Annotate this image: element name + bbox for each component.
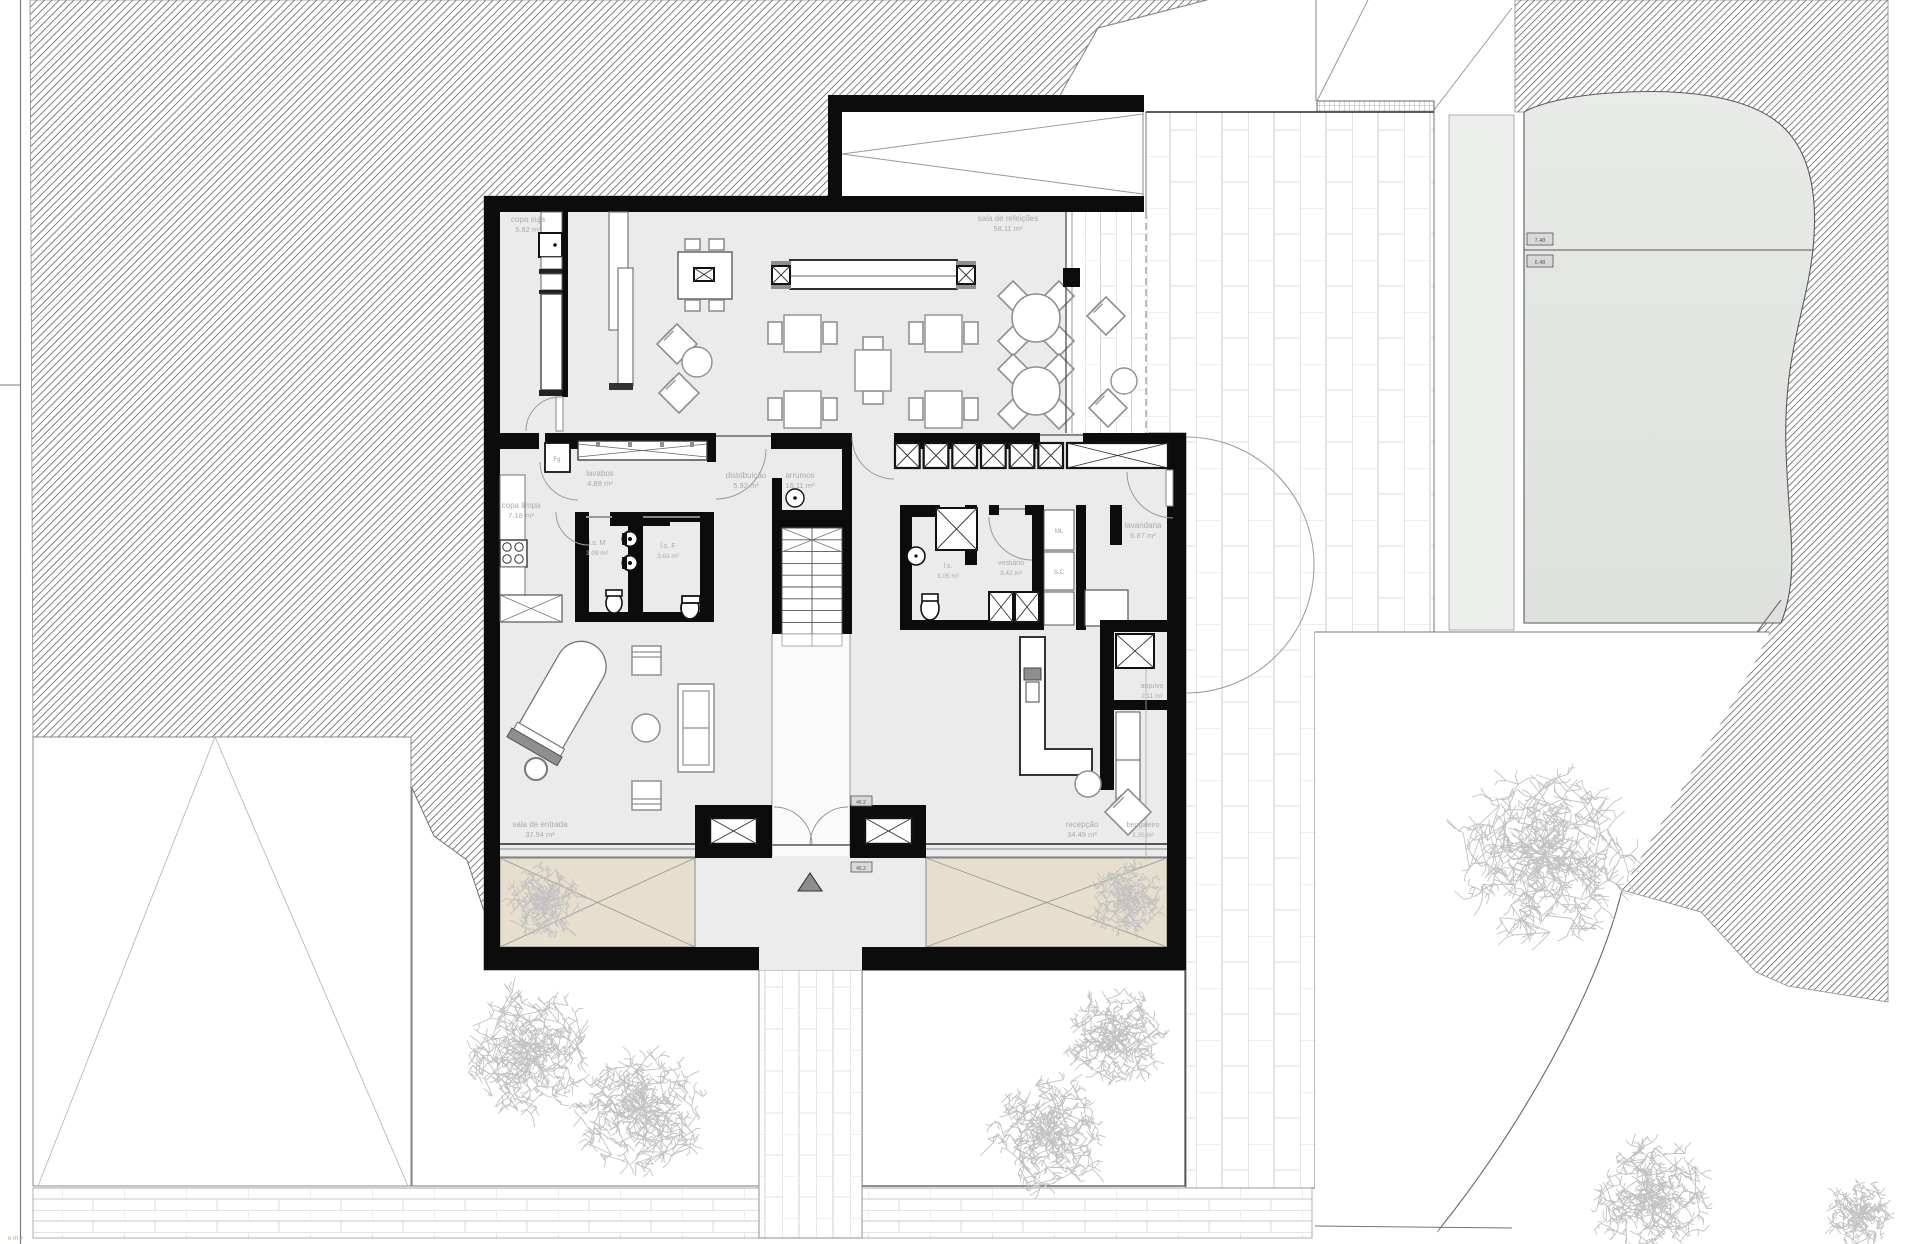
svg-text:copa limpa: copa limpa bbox=[502, 501, 541, 510]
svg-text:5.82 m²: 5.82 m² bbox=[515, 225, 541, 234]
svg-text:lavandaria: lavandaria bbox=[1125, 521, 1162, 530]
svg-text:lavabos: lavabos bbox=[586, 469, 614, 478]
svg-text:46.2: 46.2 bbox=[856, 800, 866, 806]
svg-text:3.63 m²: 3.63 m² bbox=[657, 553, 680, 560]
svg-text:3.35 m²: 3.35 m² bbox=[1132, 832, 1155, 839]
svg-text:vestiário: vestiário bbox=[998, 560, 1024, 567]
svg-text:l.s.: l.s. bbox=[944, 563, 953, 570]
svg-text:16.11 m²: 16.11 m² bbox=[785, 481, 815, 490]
svg-text:bengaleiro: bengaleiro bbox=[1127, 822, 1160, 829]
svg-text:6.87 m²: 6.87 m² bbox=[1130, 531, 1156, 540]
svg-text:l.s. F: l.s. F bbox=[660, 543, 675, 550]
svg-text:l.s. M: l.s. M bbox=[589, 540, 606, 547]
svg-text:4.88 m²: 4.88 m² bbox=[587, 479, 613, 488]
svg-text:3.09 m²: 3.09 m² bbox=[586, 550, 609, 557]
svg-text:ML: ML bbox=[1055, 529, 1064, 535]
svg-text:34.49 m²: 34.49 m² bbox=[1067, 830, 1097, 839]
svg-text:6.48: 6.48 bbox=[1535, 260, 1546, 266]
svg-text:S.C: S.C bbox=[1054, 570, 1065, 576]
svg-text:7.48: 7.48 bbox=[1535, 238, 1546, 244]
svg-text:recepção: recepção bbox=[1066, 820, 1099, 829]
svg-text:arquivo: arquivo bbox=[1141, 683, 1164, 690]
svg-text:5.92 m²: 5.92 m² bbox=[733, 481, 759, 490]
svg-text:e m +: e m + bbox=[8, 1236, 24, 1242]
svg-text:7.18 m²: 7.18 m² bbox=[508, 511, 534, 520]
svg-text:sala de refeições: sala de refeições bbox=[978, 214, 1038, 223]
svg-text:58.11 m²: 58.11 m² bbox=[993, 224, 1023, 233]
svg-text:copa suja: copa suja bbox=[511, 215, 546, 224]
svg-text:3.42 m²: 3.42 m² bbox=[1000, 570, 1023, 577]
svg-text:3.05 m²: 3.05 m² bbox=[937, 573, 960, 580]
svg-text:distribuição: distribuição bbox=[726, 471, 767, 480]
svg-text:46.2: 46.2 bbox=[856, 866, 866, 872]
svg-text:2.11 m²: 2.11 m² bbox=[1141, 693, 1163, 700]
svg-text:arrumos: arrumos bbox=[785, 471, 814, 480]
svg-text:Fg: Fg bbox=[553, 457, 560, 463]
svg-text:37.94 m²: 37.94 m² bbox=[525, 830, 555, 839]
svg-text:sala de entrada: sala de entrada bbox=[512, 820, 568, 829]
